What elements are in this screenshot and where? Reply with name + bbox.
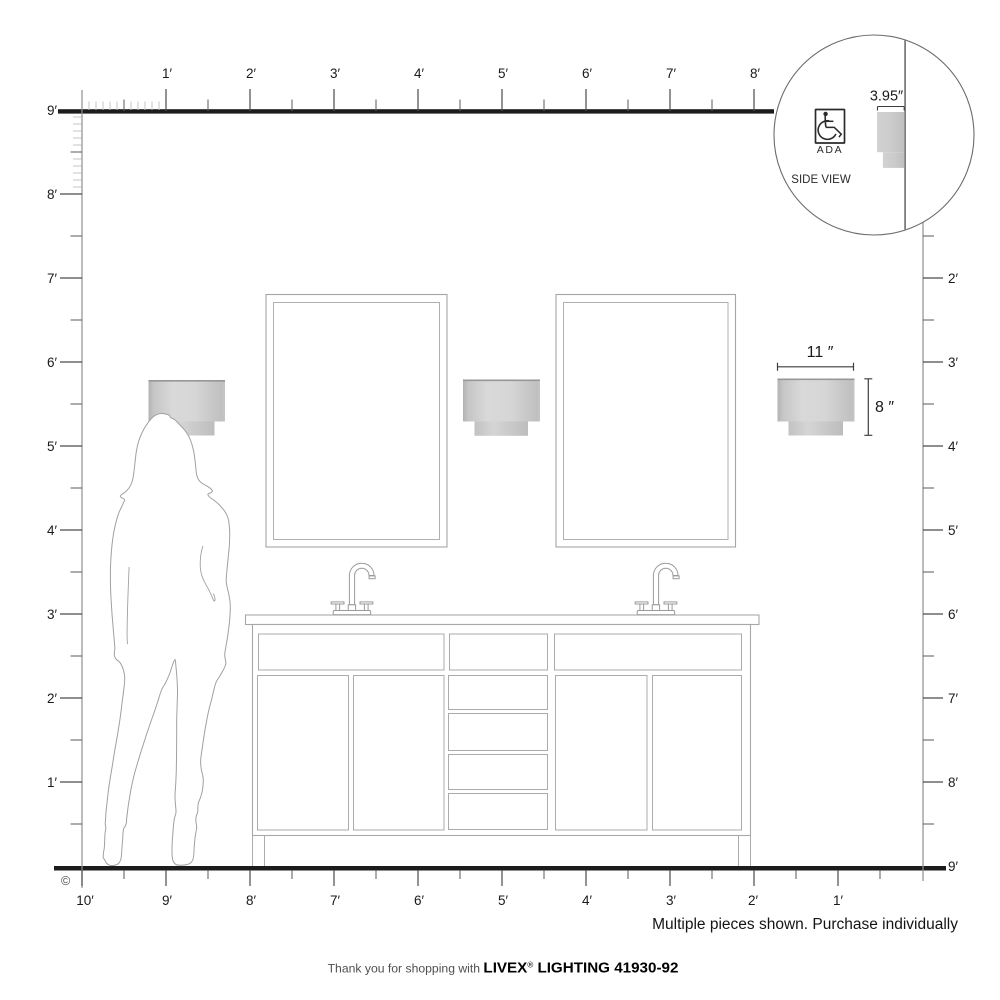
svg-text:3′: 3′ — [666, 893, 677, 908]
svg-text:7′: 7′ — [666, 66, 677, 81]
svg-text:5′: 5′ — [948, 523, 959, 538]
svg-text:9′: 9′ — [162, 893, 173, 908]
svg-text:4′: 4′ — [582, 893, 593, 908]
svg-text:7′: 7′ — [948, 691, 959, 706]
svg-text:ADA: ADA — [817, 144, 843, 156]
svg-text:11 ″: 11 ″ — [807, 344, 834, 361]
svg-text:1′: 1′ — [833, 893, 844, 908]
svg-text:3′: 3′ — [948, 355, 959, 370]
svg-text:2′: 2′ — [246, 66, 257, 81]
svg-text:6′: 6′ — [47, 355, 58, 370]
svg-text:2′: 2′ — [47, 691, 58, 706]
svg-text:5′: 5′ — [47, 439, 58, 454]
svg-text:2′: 2′ — [948, 271, 959, 286]
svg-text:9′: 9′ — [948, 859, 959, 874]
svg-text:7′: 7′ — [47, 271, 58, 286]
svg-text:8′: 8′ — [246, 893, 257, 908]
svg-text:Multiple pieces shown. Purchas: Multiple pieces shown. Purchase individu… — [652, 916, 958, 933]
svg-text:3.95″: 3.95″ — [870, 89, 903, 105]
svg-text:5′: 5′ — [498, 66, 509, 81]
svg-text:8′: 8′ — [948, 775, 959, 790]
svg-text:9′: 9′ — [47, 103, 58, 118]
svg-text:4′: 4′ — [414, 66, 425, 81]
svg-text:8′: 8′ — [750, 66, 761, 81]
svg-text:6′: 6′ — [948, 607, 959, 622]
svg-text:4′: 4′ — [948, 439, 959, 454]
svg-text:8 ″: 8 ″ — [875, 399, 894, 416]
svg-text:2′: 2′ — [748, 893, 759, 908]
svg-text:6′: 6′ — [414, 893, 425, 908]
svg-text:1′: 1′ — [162, 66, 173, 81]
svg-text:5′: 5′ — [498, 893, 509, 908]
svg-text:8′: 8′ — [47, 187, 58, 202]
svg-text:©: © — [61, 874, 71, 888]
svg-text:7′: 7′ — [330, 893, 341, 908]
svg-text:4′: 4′ — [47, 523, 58, 538]
svg-text:10′: 10′ — [76, 893, 94, 908]
svg-text:3′: 3′ — [47, 607, 58, 622]
svg-text:SIDE VIEW: SIDE VIEW — [791, 174, 851, 186]
svg-text:Thank you for shopping with LI: Thank you for shopping with LIVEX® LIGHT… — [328, 960, 679, 977]
svg-text:6′: 6′ — [582, 66, 593, 81]
svg-text:1′: 1′ — [47, 775, 58, 790]
svg-text:3′: 3′ — [330, 66, 341, 81]
